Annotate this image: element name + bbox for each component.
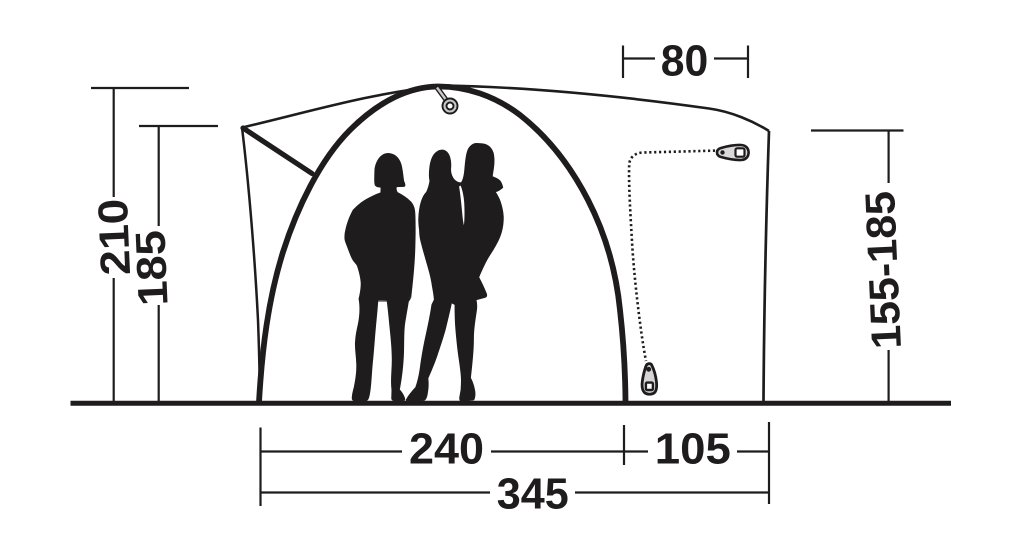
svg-text:240: 240 [409,425,484,474]
svg-text:80: 80 [661,37,709,86]
svg-text:185: 185 [126,229,176,306]
svg-text:155-185: 155-185 [856,190,910,350]
svg-text:105: 105 [655,425,731,474]
svg-text:345: 345 [497,470,569,519]
